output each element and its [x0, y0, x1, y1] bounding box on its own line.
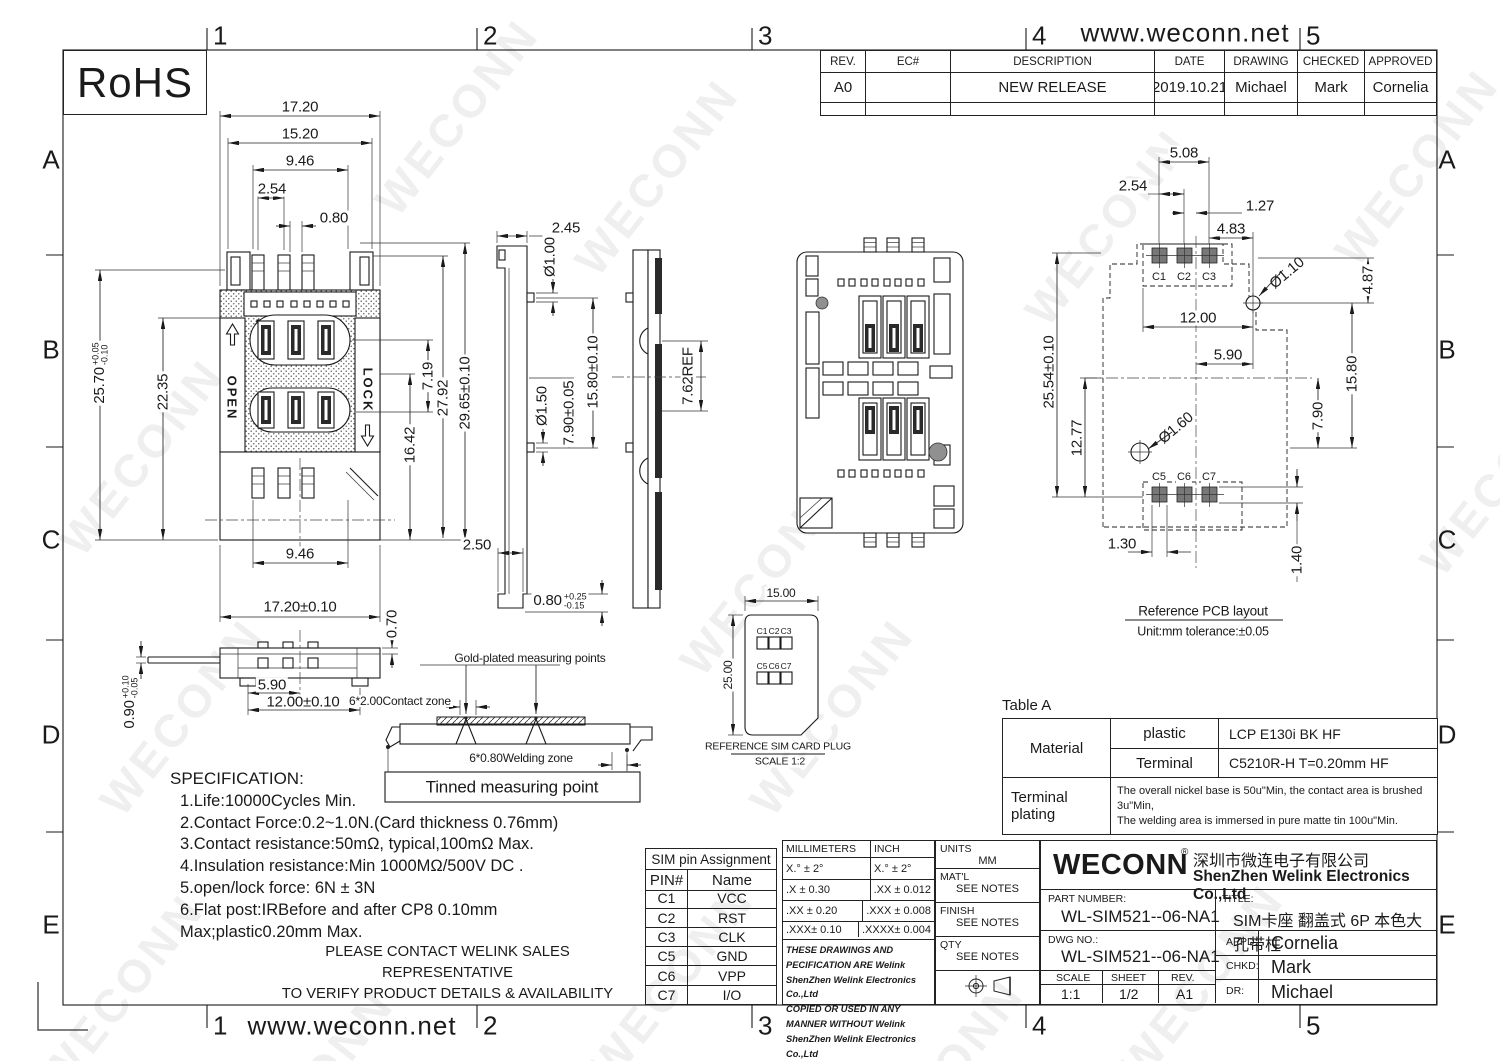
- spec-item: 5.open/lock force: 6N ± 3N: [170, 878, 622, 900]
- projection-symbol-cell: [936, 971, 1039, 1004]
- rev-header: DATE: [1155, 51, 1225, 73]
- part-number-label: PART NUMBER:: [1048, 893, 1126, 905]
- rev-cell: A0: [821, 73, 866, 103]
- grid-row-b-right: B: [1438, 335, 1455, 366]
- rev-cell: 2019.10.21: [1155, 73, 1225, 103]
- grid-col-4-bottom: 4: [1032, 1011, 1046, 1042]
- dr-label: DR:: [1226, 985, 1244, 997]
- grid-col-2-bottom: 2: [483, 1011, 497, 1042]
- rev-cell: Cornelia: [1365, 73, 1436, 103]
- table-a-title: Table A: [1002, 697, 1051, 714]
- dim-tolerance: +0.05-0.10: [92, 342, 109, 365]
- units-column: UNITS MM MAT'L SEE NOTES FINISH SEE NOTE…: [935, 840, 1040, 1005]
- pin-row: C7I/O: [646, 986, 776, 1005]
- table-a-plating-text: The overall nickel base is 50u"Min, the …: [1111, 778, 1438, 834]
- part-number-value: WL-SIM521--06-NA1: [1061, 907, 1220, 927]
- website-bottom: www.weconn.net: [247, 1011, 456, 1042]
- dim-label: 0.80+0.25-0.15: [531, 593, 588, 610]
- sim-pin-table: SIM pin Assignment PIN# Name C1VCC C2RST…: [645, 848, 777, 1005]
- units-value: MM: [936, 855, 1039, 867]
- grid-col-3-top: 3: [758, 21, 772, 52]
- grid-row-c-left: C: [42, 525, 61, 556]
- pin-row: C5GND: [646, 947, 776, 966]
- pin-table-title: SIM pin Assignment: [646, 849, 776, 870]
- pin-col-header: PIN#: [646, 870, 688, 891]
- rev-header: EC#: [866, 51, 951, 73]
- revision-table: REV. EC# DESCRIPTION DATE DRAWING CHECKE…: [820, 50, 1437, 116]
- pcb-layout-tolerance: Unit:mm tolerance:±0.05: [1135, 625, 1270, 640]
- units-label: UNITS: [940, 843, 972, 855]
- units-cell: UNITS MM: [936, 841, 1039, 869]
- qty-label: QTY: [940, 939, 962, 951]
- welding-zone-label: 6*0.80Welding zone: [467, 752, 575, 764]
- view-sim-card: [728, 596, 825, 754]
- registered-mark: ®: [1181, 847, 1188, 858]
- rev-label: REV.: [1171, 972, 1195, 984]
- dim-label: 5.08: [1168, 146, 1200, 161]
- chkd-label: CHKD:: [1226, 960, 1259, 972]
- grid-row-c-right: C: [1438, 525, 1457, 556]
- dim-label: 17.20: [280, 100, 321, 115]
- dim-label: 1.30: [1106, 537, 1138, 552]
- sim-pad-c6: C6: [768, 661, 781, 671]
- dim-label: 2.45: [550, 221, 582, 236]
- dim-label: 29.65±0.10: [458, 355, 473, 432]
- spec-item: 4.Insulation resistance:Min 1000MΩ/500V …: [170, 856, 622, 878]
- sheet-value: 1/2: [1119, 986, 1138, 1002]
- grid-row-d-left: D: [42, 720, 61, 751]
- dim-label: 25.70+0.05-0.10: [92, 340, 109, 405]
- dim-label: 5.90: [1212, 348, 1244, 363]
- table-a-terminal-value: C5210R-H T=0.20mm HF: [1219, 749, 1438, 778]
- dim-label: 5.90: [256, 678, 288, 693]
- company-logo: WECONN: [1053, 849, 1188, 882]
- spec-item: 3.Contact resistance:50mΩ, typical,100mΩ…: [170, 834, 622, 856]
- appd-value: Cornelia: [1271, 933, 1338, 954]
- notice-line-1: PLEASE CONTACT WELINK SALES REPRESENTATI…: [280, 942, 615, 984]
- title-block: WECONN ® 深圳市微连电子有限公司 ShenZhen Welink Ele…: [1040, 840, 1437, 1005]
- matl-cell: MAT'L SEE NOTES: [936, 869, 1039, 903]
- rev-empty: [821, 103, 866, 115]
- pad-label-c3: C3: [1201, 271, 1217, 283]
- pin-number: C5: [646, 947, 688, 966]
- drawing-sheet: WECONN WECONN WECONN WECONN WECONN WECON…: [0, 0, 1500, 1061]
- pad-label-c5: C5: [1151, 471, 1167, 483]
- plating-line-1: The overall nickel base is 50u"Min, the …: [1117, 784, 1432, 814]
- dim-label: 2.54: [1117, 179, 1149, 194]
- table-a-plating-label: Terminal plating: [1003, 778, 1111, 834]
- dim-label: 15.00: [764, 587, 797, 599]
- spec-item: 2.Contact Force:0.2~1.0N.(Card thickness…: [170, 813, 622, 835]
- tol-cell: X.° ± 2°: [783, 858, 871, 880]
- dwg-no-label: DWG NO.:: [1048, 934, 1098, 946]
- dim-label: 1.27: [1244, 199, 1276, 214]
- tol-row: .XX ± 0.20.XXX ± 0.008: [783, 901, 934, 922]
- pin-name: GND: [688, 947, 776, 966]
- scale-label: SCALE: [1056, 972, 1090, 984]
- tol-cell: .XX ± 0.012: [871, 880, 934, 901]
- table-a-plastic-value: LCP E130i BK HF: [1219, 719, 1438, 749]
- dim-label: 7.90: [1311, 400, 1326, 432]
- rev-cell: Mark: [1298, 73, 1365, 103]
- chkd-value: Mark: [1271, 957, 1311, 978]
- tol-cell: .XXXX± 0.004: [859, 922, 934, 937]
- finish-cell: FINISH SEE NOTES: [936, 903, 1039, 937]
- pad-label-c7: C7: [1201, 471, 1217, 483]
- dim-main: 25.70: [91, 367, 108, 404]
- third-angle-projection-icon: [936, 971, 1039, 1002]
- grid-row-e-right: E: [1438, 910, 1455, 941]
- tol-row: X.° ± 2°X.° ± 2°: [783, 858, 934, 880]
- specification: SPECIFICATION: 1.Life:10000Cycles Min. 2…: [170, 768, 622, 943]
- rev-header: DESCRIPTION: [951, 51, 1155, 73]
- pin-row: C6VPP: [646, 966, 776, 985]
- pin-row: C2RST: [646, 909, 776, 928]
- qty-cell: QTY SEE NOTES: [936, 937, 1039, 971]
- tol-cell: X.° ± 2°: [871, 858, 934, 880]
- dim-label: 2.50: [461, 538, 493, 553]
- dim-label: 4.83: [1215, 222, 1247, 237]
- tol-cell: .XXX ± 0.008: [863, 901, 934, 922]
- dim-label: 12.00±0.10: [265, 695, 342, 710]
- dim-label: 12.77: [1070, 418, 1085, 459]
- rev-cell: NEW RELEASE: [951, 73, 1155, 103]
- view-pcb-layout: [1052, 157, 1374, 620]
- scale-value: 1:1: [1061, 986, 1080, 1002]
- disclaimer-line: COPIED OR USED IN ANY MANNER WITHOUT Wel…: [786, 1002, 931, 1032]
- dim-label: 15.80: [1345, 354, 1360, 395]
- tol-minus: -0.10: [100, 342, 109, 365]
- dr-value: Michael: [1271, 982, 1333, 1003]
- pin-name: VCC: [688, 889, 776, 908]
- dim-tolerance: +0.10-0.05: [122, 675, 139, 698]
- rev-empty: [866, 103, 951, 115]
- dim-main: 0.90: [121, 700, 138, 728]
- dim-label: 22.35: [156, 372, 171, 413]
- rohs-badge: RoHS: [63, 50, 207, 115]
- grid-row-b-left: B: [42, 335, 59, 366]
- pad-label-c1: C1: [1151, 271, 1167, 283]
- rev-cell: [866, 73, 951, 103]
- grid-col-5-bottom: 5: [1306, 1011, 1320, 1042]
- rev-header: REV.: [821, 51, 866, 73]
- pin-name: I/O: [688, 986, 776, 1005]
- pin-row: C3CLK: [646, 928, 776, 947]
- spec-title: SPECIFICATION:: [170, 768, 622, 790]
- grid-row-d-right: D: [1438, 720, 1457, 751]
- sales-notice: PLEASE CONTACT WELINK SALES REPRESENTATI…: [280, 942, 615, 1005]
- copyright-disclaimer: THESE DRAWINGS AND PECIFICATION ARE Weli…: [782, 939, 935, 1005]
- rev-value: A1: [1176, 986, 1193, 1002]
- title-label: TITLE:: [1222, 893, 1254, 905]
- dim-label: 7.19: [421, 360, 436, 392]
- rev-header: APPROVED: [1365, 51, 1436, 73]
- grid-row-e-left: E: [42, 910, 59, 941]
- tol-minus: -0.15: [564, 601, 587, 610]
- sim-card-scale: SCALE 1:2: [753, 757, 807, 768]
- rev-cell: Michael: [1225, 73, 1298, 103]
- open-label: OPEN: [225, 376, 240, 421]
- tol-col-inch: INCH: [871, 841, 934, 858]
- pin-row: C1VCC: [646, 889, 776, 908]
- website-top: www.weconn.net: [1080, 18, 1289, 49]
- dim-label: 0.70: [385, 608, 400, 640]
- grid-col-3-bottom: 3: [758, 1011, 772, 1042]
- lock-label: LOCK: [361, 368, 376, 413]
- pad-label-c6: C6: [1176, 471, 1192, 483]
- rev-header: CHECKED: [1298, 51, 1365, 73]
- sim-pad-c5: C5: [756, 661, 769, 671]
- contact-zone-label: 6*2.00Contact zone: [347, 695, 453, 707]
- dim-label: 12.00: [1178, 311, 1219, 326]
- view-side-profile: [497, 231, 608, 626]
- tol-minus: -0.05: [130, 675, 139, 698]
- dim-label: 15.20: [280, 127, 321, 142]
- gold-points-label: Gold-plated measuring points: [452, 652, 607, 664]
- dim-label: 17.20±0.10: [262, 600, 339, 615]
- matl-value: SEE NOTES: [936, 883, 1039, 895]
- grid-row-a-right: A: [1438, 145, 1455, 176]
- sim-pad-c7: C7: [780, 661, 793, 671]
- dim-label: 0.90+0.10-0.05: [122, 673, 139, 730]
- dim-label: Ø1.50: [535, 384, 550, 428]
- grid-col-1-top: 1: [213, 21, 227, 52]
- tol-header-row: MILLIMETERS INCH: [783, 841, 934, 858]
- tol-cell: .XX ± 0.20: [783, 901, 863, 922]
- dim-label: 15.80±0.10: [586, 334, 601, 411]
- grid-col-5-top: 5: [1306, 21, 1320, 52]
- dim-label: 27.92: [436, 378, 451, 419]
- grid-col-4-top: 4: [1032, 21, 1046, 52]
- grid-row-a-left: A: [42, 145, 59, 176]
- notice-line-2: TO VERIFY PRODUCT DETAILS & AVAILABILITY: [280, 984, 615, 1005]
- dim-label: 9.46: [284, 154, 316, 169]
- rev-empty: [1225, 103, 1298, 115]
- pin-col-header: Name: [688, 870, 776, 891]
- dim-label: 16.42: [403, 425, 418, 466]
- finish-value: SEE NOTES: [936, 917, 1039, 929]
- dim-tolerance: +0.25-0.15: [564, 593, 587, 610]
- plating-line-2: The welding area is immersed in pure mat…: [1117, 814, 1432, 829]
- dim-label: 7.62REF: [681, 345, 696, 407]
- rev-empty: [951, 103, 1155, 115]
- grid-col-1-bottom: 1: [213, 1011, 227, 1042]
- rev-empty: [1298, 103, 1365, 115]
- dim-label: 7.90±0.05: [562, 379, 577, 448]
- disclaimer-line: ShenZhen Welink Electronics Co.,Ltd: [786, 973, 931, 1003]
- tol-col-mm: MILLIMETERS: [783, 841, 871, 858]
- pin-name: CLK: [688, 928, 776, 947]
- pin-number: C2: [646, 909, 688, 928]
- tol-row: .X ± 0.30.XX ± 0.012: [783, 880, 934, 901]
- dim-label: 25.00: [722, 658, 734, 691]
- table-a: Material plastic LCP E130i BK HF Termina…: [1002, 718, 1438, 835]
- pcb-layout-caption: Reference PCB layout: [1136, 604, 1270, 619]
- tol-row: .XXX± 0.10.XXXX± 0.004: [783, 922, 934, 937]
- dim-main: 0.80: [533, 592, 561, 609]
- sim-pad-c1: C1: [756, 626, 769, 636]
- pin-table-header: PIN# Name: [646, 870, 776, 889]
- tol-cell: .XXX± 0.10: [783, 922, 859, 937]
- spec-item: 6.Flat post:IRBefore and after CP8 0.10m…: [170, 900, 622, 944]
- dim-label: Ø1.00: [543, 235, 558, 279]
- rev-empty: [1365, 103, 1436, 115]
- tol-cell: .X ± 0.30: [783, 880, 871, 901]
- dim-label: 2.54: [256, 182, 288, 197]
- matl-label: MAT'L: [940, 871, 969, 883]
- table-a-plastic-label: plastic: [1111, 719, 1219, 749]
- pin-number: C6: [646, 966, 688, 985]
- spec-item: 1.Life:10000Cycles Min.: [170, 791, 622, 813]
- pin-number: C3: [646, 928, 688, 947]
- pin-number: C1: [646, 889, 688, 908]
- dim-label: 25.54±0.10: [1042, 334, 1057, 411]
- tolerance-table: MILLIMETERS INCH X.° ± 2°X.° ± 2° .X ± 0…: [782, 840, 935, 940]
- dim-label: 0.80: [318, 211, 350, 226]
- qty-value: SEE NOTES: [936, 951, 1039, 963]
- appd-label: APPD:: [1226, 936, 1258, 948]
- table-a-material-label: Material: [1003, 719, 1111, 778]
- disclaimer-line: THESE DRAWINGS AND PECIFICATION ARE Weli…: [786, 943, 931, 973]
- sim-pad-c2: C2: [768, 626, 781, 636]
- disclaimer-line: ShenZhen Welink Electronics Co.,Ltd: [786, 1032, 931, 1061]
- dim-label: 4.87: [1361, 264, 1376, 296]
- rev-header: DRAWING: [1225, 51, 1298, 73]
- pin-name: VPP: [688, 966, 776, 985]
- rev-empty: [1155, 103, 1225, 115]
- finish-label: FINISH: [940, 905, 974, 917]
- dwg-no-value: WL-SIM521--06-NA1: [1061, 947, 1220, 967]
- dim-label: 9.46: [284, 547, 316, 562]
- pad-label-c2: C2: [1176, 271, 1192, 283]
- sim-pad-c3: C3: [780, 626, 793, 636]
- pin-number: C7: [646, 986, 688, 1005]
- pin-name: RST: [688, 909, 776, 928]
- view-bottom: [797, 238, 963, 547]
- dim-label: 1.40: [1290, 544, 1305, 576]
- sim-card-caption: REFERENCE SIM CARD PLUG: [703, 742, 853, 753]
- grid-col-2-top: 2: [483, 21, 497, 52]
- table-a-terminal-label: Terminal: [1111, 749, 1219, 778]
- sheet-label: SHEET: [1111, 972, 1146, 984]
- view-side-contacts: [612, 250, 708, 608]
